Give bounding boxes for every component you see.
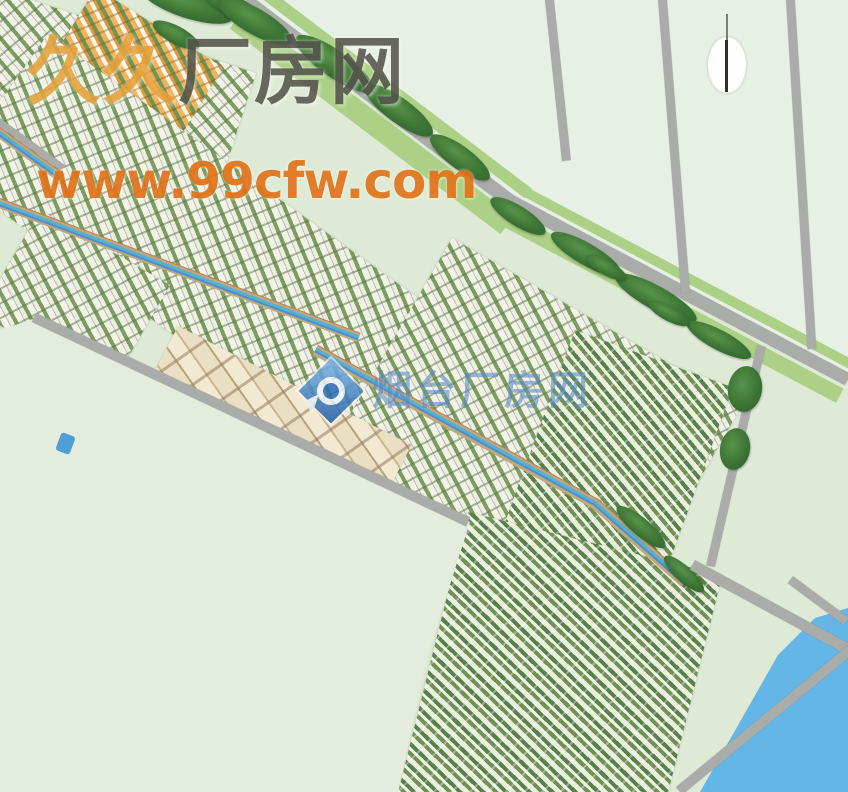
center-watermark: 烟台厂房网 xyxy=(300,360,592,422)
center-watermark-text: 烟台厂房网 xyxy=(372,371,592,411)
yantai-cfw-logo-icon xyxy=(300,360,362,422)
brand-watermark-gold: 久久 xyxy=(26,29,178,115)
north-arrow-icon xyxy=(725,40,728,92)
url-watermark: www.99cfw.com xyxy=(36,156,476,206)
compass-stem xyxy=(726,14,728,42)
logo-ring xyxy=(317,377,345,405)
brand-watermark-gray: 厂房网 xyxy=(178,29,406,115)
site-plan-map: 久久厂房网 www.99cfw.com 烟台厂房网 xyxy=(0,0,848,792)
brand-watermark: 久久厂房网 xyxy=(26,30,406,115)
